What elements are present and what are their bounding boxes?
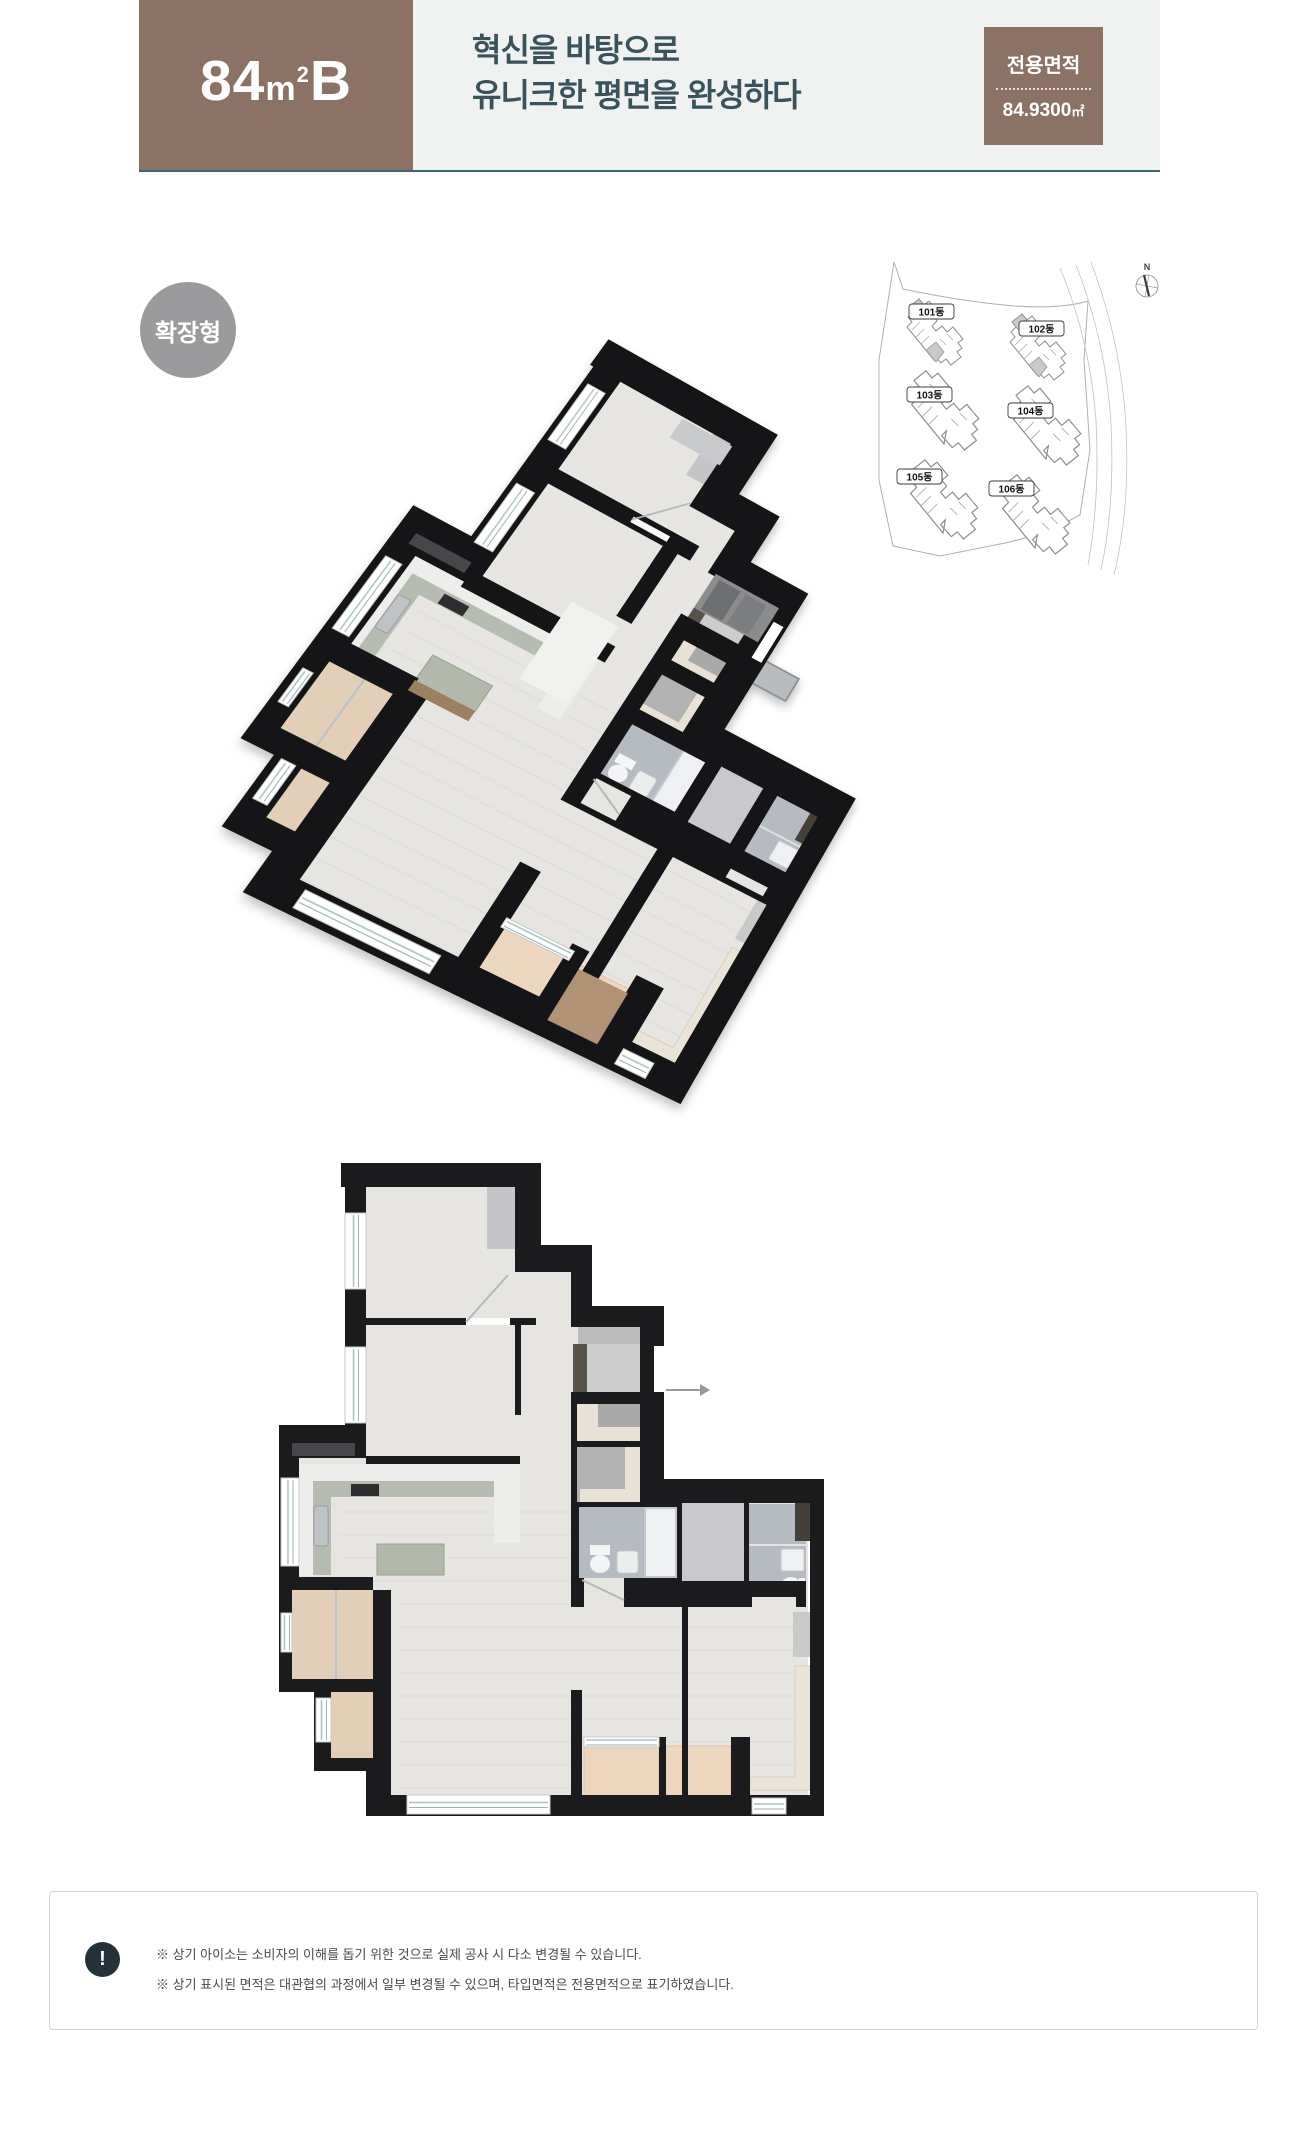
svg-text:105동: 105동: [907, 472, 933, 484]
svg-text:106동: 106동: [999, 484, 1025, 496]
svg-text:104동: 104동: [1018, 406, 1044, 418]
svg-text:101동: 101동: [919, 307, 945, 319]
svg-text:N: N: [1144, 262, 1151, 272]
svg-text:103동: 103동: [917, 390, 943, 402]
svg-text:102동: 102동: [1029, 324, 1055, 336]
